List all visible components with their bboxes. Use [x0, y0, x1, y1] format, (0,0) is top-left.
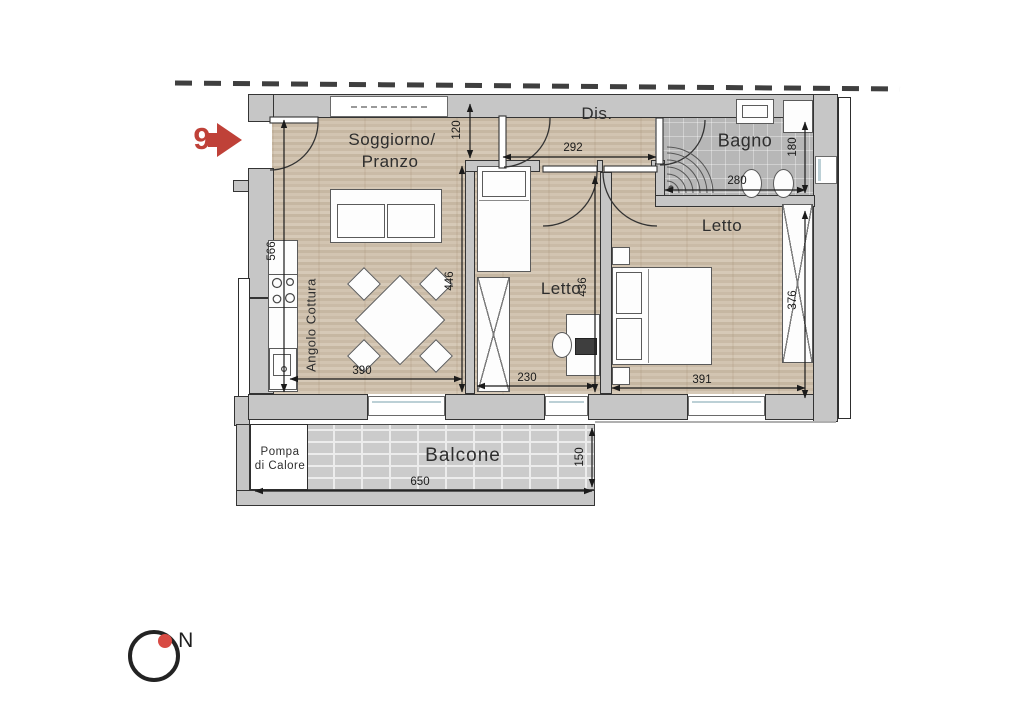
window-glass — [549, 401, 584, 403]
compass-icon — [128, 630, 180, 682]
dimension-label: 150 — [574, 447, 586, 466]
wall-left-stub — [233, 180, 249, 192]
window-dash — [351, 106, 427, 108]
adjacent-wall-outline-right — [838, 97, 851, 419]
sofa-cushion — [387, 204, 435, 238]
room-label-balcone: Balcone — [425, 445, 501, 467]
wall-soggiorno-letto — [465, 160, 475, 394]
pillow — [482, 171, 526, 197]
site-boundary-line — [175, 83, 900, 89]
bathroom-cabinet — [783, 100, 813, 133]
room-label-bagno: Bagno — [718, 131, 773, 152]
label-pompa-di-calore-2: di Calore — [255, 460, 306, 472]
balcony-wall-bottom — [236, 490, 595, 506]
dimension-label: 230 — [517, 372, 536, 384]
wall-between-bedrooms — [600, 172, 612, 394]
wall-bottom-3 — [588, 394, 688, 420]
wall-dis-letto-2 — [597, 160, 603, 172]
window-glass — [818, 159, 821, 181]
toilet — [773, 169, 794, 198]
room-label-letto-right: Letto — [702, 216, 742, 236]
wall-right — [813, 94, 838, 422]
wall-bottom-1 — [248, 394, 368, 420]
computer — [575, 338, 597, 355]
floor-plan-canvas: 120 292 566 446 436 180 280 376 390 230 … — [0, 0, 1024, 705]
window-bagno-right — [815, 156, 837, 184]
window-letto-mid — [545, 396, 588, 416]
pillow — [616, 272, 642, 314]
bed-fold-line — [648, 269, 649, 363]
dimension-label: 292 — [563, 142, 582, 154]
kitchen-sink-basin — [273, 354, 291, 376]
window-glass — [372, 401, 441, 403]
room-label-angolo-cottura: Angolo Cottura — [304, 278, 319, 372]
dimension-label: 446 — [444, 271, 456, 290]
room-label-letto-mid: Letto — [541, 279, 581, 299]
window-letto-right — [688, 396, 765, 416]
nightstand — [612, 367, 630, 385]
label-pompa-di-calore: Pompa — [261, 446, 300, 458]
bathroom-sink-basin — [742, 105, 768, 118]
room-label-soggiorno-2: Pranzo — [362, 152, 419, 172]
pillow — [616, 318, 642, 360]
nightstand — [612, 247, 630, 265]
wall-left-upper — [248, 94, 274, 122]
dimension-label: 391 — [692, 374, 711, 386]
wardrobe — [782, 204, 813, 363]
room-label-soggiorno: Soggiorno/ — [348, 130, 435, 150]
dimension-label: 566 — [266, 241, 278, 260]
desk-chair — [552, 332, 572, 358]
room-label-dis: Dis. — [581, 104, 612, 124]
wardrobe — [477, 277, 510, 392]
dimension-label: 390 — [352, 365, 371, 377]
dimension-label: 180 — [787, 137, 799, 156]
french-window-soggiorno — [368, 396, 445, 416]
bed-fold-line — [479, 200, 529, 201]
dimension-label: 120 — [451, 120, 463, 139]
window-soggiorno — [330, 96, 448, 117]
stove — [268, 274, 298, 308]
north-label: N — [178, 629, 194, 653]
wall-bottom-2 — [445, 394, 545, 420]
dimension-label: 376 — [787, 290, 799, 309]
entrance-arrow-icon — [217, 123, 242, 157]
compass-north-dot — [158, 634, 172, 648]
dimension-label: 280 — [727, 175, 746, 187]
window-glass — [692, 401, 761, 403]
sofa-cushion — [337, 204, 385, 238]
dimension-label: 650 — [410, 476, 429, 488]
